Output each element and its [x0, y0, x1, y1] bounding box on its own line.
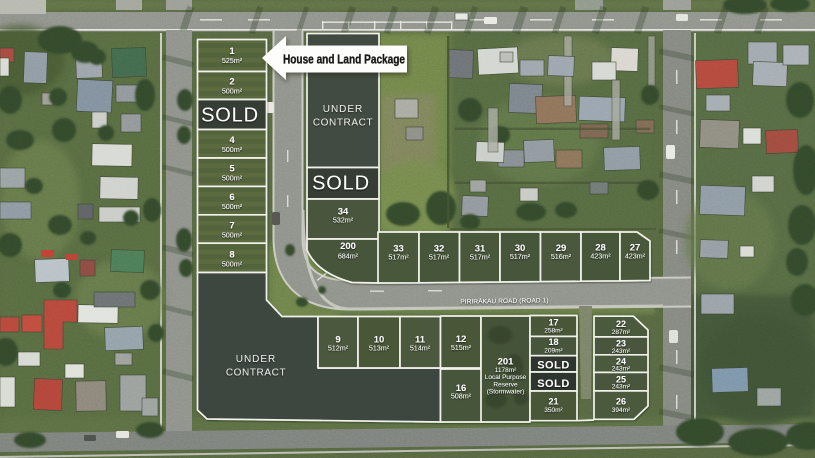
svg-text:500m²: 500m²	[222, 260, 243, 269]
svg-text:500m²: 500m²	[222, 174, 243, 183]
svg-text:500m²: 500m²	[222, 231, 243, 240]
svg-text:200: 200	[340, 241, 356, 252]
svg-text:CONTRACT: CONTRACT	[226, 368, 286, 379]
svg-text:508m²: 508m²	[451, 392, 472, 401]
svg-text:517m²: 517m²	[470, 253, 491, 262]
svg-text:SOLD: SOLD	[201, 105, 259, 127]
svg-text:201: 201	[498, 357, 515, 368]
svg-text:517m²: 517m²	[388, 253, 409, 262]
svg-text:(Stormwater): (Stormwater)	[487, 389, 525, 396]
svg-text:UNDER: UNDER	[236, 354, 277, 365]
svg-text:22: 22	[616, 319, 626, 329]
svg-text:525m²: 525m²	[222, 56, 243, 65]
svg-text:18: 18	[548, 337, 558, 347]
svg-text:517m²: 517m²	[510, 252, 531, 261]
svg-text:21: 21	[548, 397, 558, 407]
svg-text:394m²: 394m²	[612, 407, 631, 414]
svg-text:SOLD: SOLD	[312, 173, 370, 195]
svg-text:514m²: 514m²	[410, 344, 431, 353]
svg-text:PIRIRĀKAU ROAD (ROAD 1): PIRIRĀKAU ROAD (ROAD 1)	[460, 296, 548, 305]
svg-text:423m²: 423m²	[590, 252, 611, 261]
svg-text:243m²: 243m²	[612, 348, 631, 355]
svg-text:500m²: 500m²	[222, 145, 243, 154]
svg-text:287m²: 287m²	[612, 329, 631, 336]
svg-text:1178m²: 1178m²	[495, 367, 517, 374]
svg-text:26: 26	[616, 397, 626, 407]
svg-text:258m²: 258m²	[544, 328, 563, 335]
svg-text:684m²: 684m²	[338, 252, 359, 261]
svg-text:512m²: 512m²	[328, 344, 349, 353]
svg-text:Local Purpose: Local Purpose	[485, 374, 527, 381]
svg-text:SOLD: SOLD	[537, 378, 570, 390]
svg-text:209m²: 209m²	[544, 348, 563, 355]
svg-text:532m²: 532m²	[333, 216, 354, 225]
svg-text:513m²: 513m²	[369, 344, 390, 353]
svg-text:Reserve: Reserve	[493, 382, 518, 389]
svg-text:516m²: 516m²	[551, 252, 572, 261]
svg-text:515m²: 515m²	[451, 343, 472, 352]
svg-text:423m²: 423m²	[625, 252, 646, 261]
svg-text:17: 17	[548, 318, 558, 328]
svg-text:SOLD: SOLD	[537, 360, 570, 372]
svg-text:517m²: 517m²	[429, 253, 450, 262]
svg-text:350m²: 350m²	[544, 407, 563, 414]
svg-text:500m²: 500m²	[222, 202, 243, 211]
svg-text:House and Land Package: House and Land Package	[283, 53, 405, 67]
svg-text:CONTRACT: CONTRACT	[313, 118, 373, 129]
svg-text:UNDER: UNDER	[323, 104, 364, 115]
svg-text:243m²: 243m²	[612, 384, 631, 391]
svg-text:243m²: 243m²	[612, 366, 631, 373]
svg-text:500m²: 500m²	[222, 87, 243, 96]
